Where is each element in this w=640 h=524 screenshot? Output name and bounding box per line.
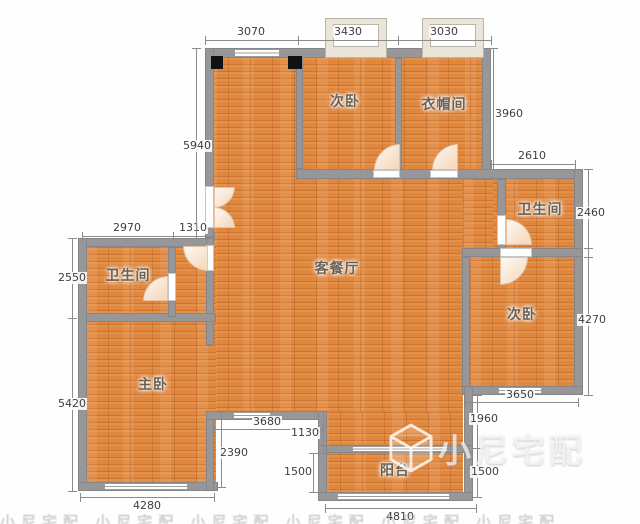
dimension-tick — [68, 491, 77, 492]
wall-right-upper-outer — [482, 48, 491, 179]
dimension-label: 1500 — [470, 466, 500, 478]
dimension-tick — [319, 453, 328, 454]
dimension-tick — [578, 398, 579, 407]
dimension-tick — [575, 160, 576, 169]
dimension-tick — [489, 169, 498, 170]
dimension-line — [398, 40, 491, 41]
dimension-tick — [192, 238, 201, 239]
column — [288, 56, 302, 69]
dimension-line — [323, 411, 324, 453]
dimension-label: 3960 — [494, 108, 524, 120]
dimension-line — [465, 402, 578, 403]
room-label-bathroom-right: 卫生间 — [518, 199, 563, 219]
floor-vestibule — [463, 179, 493, 249]
dimension-label: 3070 — [236, 26, 266, 38]
dimension-label: 2390 — [219, 447, 249, 459]
wall-bedright-left — [462, 257, 470, 395]
dimension-label: 1960 — [469, 413, 499, 425]
window-master-bottom — [104, 483, 188, 490]
dimension-line — [205, 40, 298, 41]
dimension-line — [173, 236, 214, 237]
door-threshold-bed-right — [500, 248, 532, 257]
dimension-tick — [584, 395, 593, 396]
dimension-tick — [217, 487, 226, 488]
dimension-label: 1130 — [290, 427, 320, 439]
dimension-tick — [214, 232, 215, 241]
room-label-bedroom-second-top: 次卧 — [330, 91, 360, 111]
dimension-label: 2610 — [517, 150, 547, 162]
floor-living-dining — [206, 169, 463, 412]
floor-balcony-area — [318, 412, 463, 501]
room-label-balcony: 阳台 — [380, 460, 410, 480]
dimension-line — [491, 164, 575, 165]
dimension-line — [313, 453, 314, 492]
room-label-bathroom-left: 卫生间 — [106, 265, 151, 285]
dimension-label: 3430 — [333, 26, 363, 38]
dimension-label: 1310 — [178, 222, 208, 234]
window-balcony-slider — [352, 446, 448, 452]
dimension-label: 2460 — [576, 207, 606, 219]
dimension-line — [82, 236, 173, 237]
column — [211, 56, 223, 69]
door-threshold-bath-left — [168, 273, 176, 301]
dimension-label: 3650 — [505, 389, 535, 401]
wall-divider-bed-top — [296, 58, 303, 169]
dimension-tick — [214, 493, 215, 502]
window-living-top — [234, 49, 280, 57]
room-label-bedroom-second-right: 次卧 — [507, 304, 537, 324]
dimension-label: 4270 — [577, 314, 607, 326]
door-threshold-bath-right — [497, 215, 506, 245]
room-label-cloakroom: 衣帽间 — [422, 94, 467, 114]
room-label-living-dining-room: 客餐厅 — [315, 258, 360, 278]
floor-plan: 3070343030302970131026103650368042804810… — [0, 0, 640, 524]
room-label-master-bedroom: 主卧 — [138, 374, 168, 394]
door-threshold-bed-top — [373, 170, 400, 178]
window-balcony-bottom — [337, 493, 450, 500]
dimension-line — [80, 497, 214, 498]
dimension-label: 5940 — [182, 140, 212, 152]
bottom-watermark-band: 小尼宅配 小尼宅配 小尼宅配 小尼宅配 小尼宅配 小尼宅配 — [0, 511, 640, 524]
dimension-tick — [473, 497, 482, 498]
wall-bathleft-bottom — [86, 313, 216, 322]
door-threshold-cloakroom — [430, 170, 458, 178]
dimension-label: 2970 — [112, 222, 142, 234]
dimension-label: 3680 — [252, 416, 282, 428]
dimension-label: 3030 — [429, 26, 459, 38]
dimension-line — [298, 40, 398, 41]
dimension-label: 1500 — [283, 466, 313, 478]
dimension-label: 2550 — [57, 272, 87, 284]
dimension-label: 5420 — [57, 398, 87, 410]
wall-master-right-lower — [206, 412, 214, 491]
wall-right-mid-outer — [574, 169, 583, 395]
dimension-tick — [491, 36, 492, 45]
dimension-tick — [309, 492, 318, 493]
dimension-line — [325, 508, 476, 509]
